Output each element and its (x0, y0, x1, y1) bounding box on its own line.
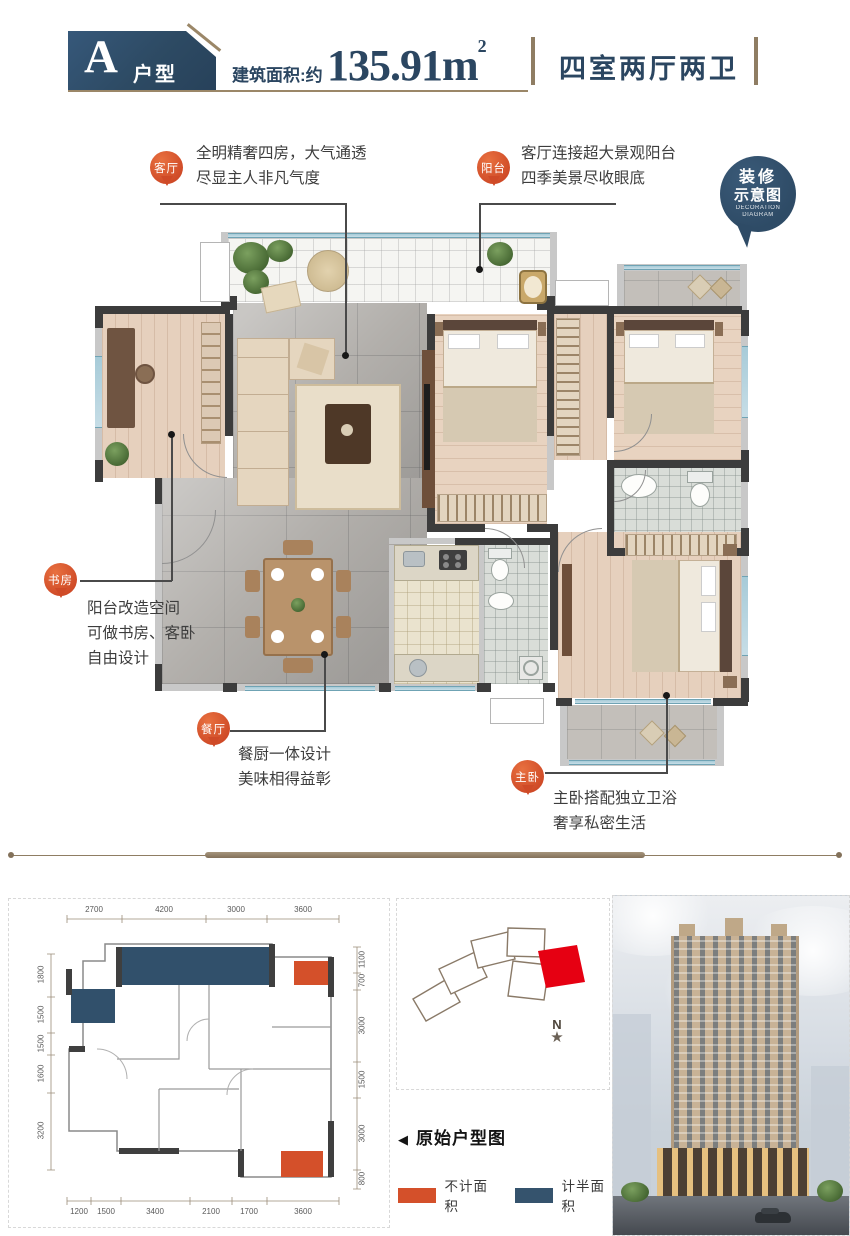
bottom-balcony-window (569, 760, 715, 765)
dim-label: 1600 (37, 1057, 46, 1091)
wall (607, 460, 741, 468)
study-text-3: 自由设计 (87, 646, 196, 671)
wall (225, 314, 233, 436)
wall (740, 264, 747, 312)
toilet-bowl (690, 483, 710, 507)
living-callout-text: 全明精奢四房，大气通透 尽显主人非凡气度 (196, 141, 367, 191)
decoration-diagram-badge: 装修 示意图 DECORATION DIAGRAM (720, 156, 796, 232)
plant (233, 242, 269, 274)
master-connector-h (545, 772, 668, 774)
study-connector-v (171, 436, 173, 581)
layout-right-bar (754, 37, 758, 85)
wall (617, 264, 624, 312)
balcony-window (228, 233, 550, 238)
dining-pin: 餐厅 (197, 712, 230, 745)
dining-callout-text: 餐厨一体设计 美味相得益彰 (238, 742, 331, 792)
tree (817, 1180, 843, 1202)
chair (283, 658, 313, 673)
wall (223, 683, 237, 692)
bedroom2-door-arc (485, 528, 525, 568)
corridor-closet (556, 318, 580, 456)
bed2-headboard (443, 320, 537, 330)
half-area-top (122, 947, 272, 985)
wall (155, 478, 162, 504)
site-map-drawing (397, 899, 611, 1091)
dim-label: 1800 (37, 958, 46, 992)
area-exponent: 2 (478, 36, 486, 56)
nightstand (715, 322, 723, 336)
chair (245, 570, 260, 592)
bedroom2-wardrobe (437, 494, 547, 522)
legend-items-row: 不计面积 计半面积 (398, 1175, 610, 1215)
plate (311, 630, 324, 643)
toilet-tank (687, 471, 713, 483)
master-wardrobe (625, 534, 737, 556)
wash-basin-bowl (524, 276, 542, 298)
legend: ◀原始户型图 不计面积 计半面积 (398, 1124, 610, 1215)
wall (560, 705, 567, 765)
plant (105, 442, 129, 466)
badge-line2: 示意图 (720, 187, 796, 205)
burner (443, 554, 449, 560)
dim-label: 3600 (286, 905, 320, 914)
bed2-blanket (443, 386, 537, 442)
original-plan-drawing (9, 899, 391, 1229)
wall (717, 705, 724, 765)
wall (713, 698, 748, 706)
study-connector-dot (168, 431, 175, 438)
wall (547, 314, 554, 436)
plate (271, 568, 284, 581)
living-text-1: 全明精奢四房，大气通透 (196, 141, 367, 166)
master-pillow (701, 602, 716, 632)
study-text-2: 可做书房、客卧 (87, 621, 196, 646)
chair (283, 540, 313, 555)
balcony-connector-dot (476, 266, 483, 273)
wall (556, 698, 572, 706)
dim-label: 2700 (77, 905, 111, 914)
floorplan-poster: A 户型 建筑面积:约 135.91m2 四室两厅两卫 装修 示意图 DECOR… (0, 0, 850, 1236)
wall (389, 538, 459, 544)
wall (479, 545, 484, 685)
wall (741, 310, 749, 336)
dim-label: 2100 (194, 1207, 228, 1216)
sofa (237, 338, 289, 506)
living-room-pin: 客厅 (150, 151, 183, 184)
dim-label: 3200 (37, 1114, 46, 1148)
legend-label-uncounted: 不计面积 (444, 1175, 493, 1215)
study-pin: 书房 (44, 563, 77, 596)
balcony-pin: 阳台 (477, 151, 510, 184)
room-layout-text: 四室两厅两卫 (549, 47, 749, 86)
dim-label: 3400 (138, 1207, 172, 1216)
balcony-callout-text: 客厅连接超大景观阳台 四季美景尽收眼底 (521, 141, 676, 191)
area-value: 135.91m2 (327, 36, 486, 91)
fixture-label-box (490, 698, 544, 724)
wall (95, 460, 103, 482)
chair (336, 570, 351, 592)
bed3-pillow (675, 334, 705, 348)
small-balcony-window (624, 265, 740, 270)
half-area-left (71, 989, 115, 1023)
decorated-floorplan (95, 228, 755, 803)
dim-label: 700 (358, 964, 367, 998)
nightstand (616, 322, 624, 336)
area-number: 135.91m (327, 41, 478, 90)
bed2-pillow (497, 334, 529, 349)
wall (607, 314, 614, 418)
divider-dot (836, 852, 842, 858)
wall (741, 450, 749, 482)
living-text-2: 尽显主人非凡气度 (196, 166, 367, 191)
wall (547, 434, 554, 490)
living-connector-h (160, 203, 347, 205)
master-pillow (701, 566, 716, 596)
uncounted-area-top (294, 961, 331, 985)
area-prefix: 建筑面积:约 (232, 61, 323, 86)
uncounted-area-bottom (281, 1151, 323, 1177)
kitchen-window (395, 686, 475, 691)
dining-window (245, 686, 375, 691)
master-headboard (720, 560, 732, 672)
burner (443, 562, 449, 568)
badge-line4: DIAGRAM (720, 212, 796, 219)
master-bedroom-pin: 主卧 (511, 760, 544, 793)
site-map-panel: N ★ (396, 898, 610, 1090)
wall (100, 306, 230, 314)
balcony-text-1: 客厅连接超大景观阳台 (521, 141, 676, 166)
bed2-pillow (448, 334, 480, 349)
unit-type-label: 户型 (133, 58, 177, 87)
table-decor (341, 424, 353, 436)
dim-label: 3000 (358, 1117, 367, 1151)
street (613, 1196, 850, 1236)
balcony-text-2: 四季美景尽收眼底 (521, 166, 676, 191)
master-connector-dot (663, 692, 670, 699)
legend-label-half: 计半面积 (561, 1175, 610, 1215)
dim-label: 1500 (358, 1063, 367, 1097)
dining-connector-v (324, 656, 326, 731)
dining-text-2: 美味相得益彰 (238, 767, 331, 792)
master-text-1: 主卧搭配独立卫浴 (553, 786, 677, 811)
dining-text-1: 餐厨一体设计 (238, 742, 331, 767)
tree (621, 1182, 649, 1202)
dim-label: 3600 (286, 1207, 320, 1216)
legend-swatch-uncounted (398, 1188, 436, 1203)
master-blanket (632, 560, 680, 672)
master-tv-console (562, 564, 572, 656)
living-connector-dot (342, 352, 349, 359)
kitchen-sink (403, 551, 425, 567)
master-callout-text: 主卧搭配独立卫浴 奢享私密生活 (553, 786, 677, 836)
dim-label: 3000 (219, 905, 253, 914)
master-balcony-door (575, 699, 711, 704)
bed3-pillow (629, 334, 659, 348)
car (755, 1212, 791, 1223)
master-window (742, 576, 748, 656)
legend-title-row: ◀原始户型图 (398, 1124, 610, 1149)
main-tower (671, 936, 799, 1150)
study-chair (135, 364, 155, 384)
study-callout-text: 阳台改造空间 可做书房、客卧 自由设计 (87, 596, 196, 671)
kitchen-round-sink (409, 659, 427, 677)
dim-label: 3000 (358, 1009, 367, 1043)
unit-type-letter: A (84, 34, 118, 81)
study-connector-h (80, 580, 172, 582)
study-window (95, 356, 102, 428)
tower-crown (725, 918, 743, 938)
chair (336, 616, 351, 638)
living-connector-v (345, 203, 347, 354)
tower-podium (657, 1148, 809, 1200)
section-divider-bar (205, 852, 645, 858)
nightstand (723, 544, 737, 556)
round-rug (307, 250, 349, 292)
compass-star-icon: ★ (547, 1033, 567, 1043)
dining-connector-h (230, 730, 326, 732)
balcony-connector-h (479, 203, 616, 205)
bookshelf (201, 322, 221, 444)
wall (427, 524, 485, 532)
bedroom3-window (742, 346, 748, 418)
wall (95, 306, 103, 328)
legend-swatch-half (515, 1188, 553, 1203)
wall (607, 460, 614, 556)
burner (455, 554, 461, 560)
dim-label: 4200 (147, 905, 181, 914)
nightstand (435, 322, 443, 336)
badge-line3: DECORATION (720, 205, 796, 212)
chair (245, 616, 260, 638)
master-connector-v (666, 697, 668, 773)
wall (741, 528, 749, 556)
wall (610, 306, 742, 314)
bed3-headboard (624, 320, 714, 330)
legend-arrow-icon: ◀ (398, 1132, 408, 1147)
original-plan-panel: 2700 4200 3000 3600 1200 1500 3400 2100 … (8, 898, 390, 1228)
tv-screen (424, 384, 430, 470)
kitchen-counter-2 (394, 654, 479, 682)
fixture-box (200, 242, 230, 302)
highlighted-unit (538, 945, 585, 988)
study-text-1: 阳台改造空间 (87, 596, 196, 621)
balcony-connector-v (479, 203, 481, 267)
master-text-2: 奢享私密生活 (553, 811, 677, 836)
plant (487, 242, 513, 266)
bathroom2-sink (488, 592, 514, 610)
layout-left-bar (531, 37, 535, 85)
dim-label: 1500 (37, 1027, 46, 1061)
nightstand (538, 322, 546, 336)
washing-machine-door (523, 660, 539, 676)
building-photo (612, 895, 850, 1236)
dim-label: 1700 (232, 1207, 266, 1216)
wall (477, 683, 491, 692)
table-centerpiece (291, 598, 305, 612)
wall (427, 314, 435, 352)
divider-dot (8, 852, 14, 858)
plate (311, 568, 324, 581)
dining-connector-dot (321, 651, 328, 658)
legend-title: 原始户型图 (416, 1129, 506, 1148)
wall (379, 683, 391, 692)
wall (543, 683, 555, 692)
nightstand (723, 676, 737, 688)
fixture-label-box (555, 280, 609, 306)
burner (455, 562, 461, 568)
plant (267, 240, 293, 262)
dim-label: 1500 (89, 1207, 123, 1216)
study-desk (107, 328, 135, 428)
dim-label: 800 (358, 1162, 367, 1196)
plate (271, 630, 284, 643)
badge-line1: 装修 (720, 169, 796, 187)
